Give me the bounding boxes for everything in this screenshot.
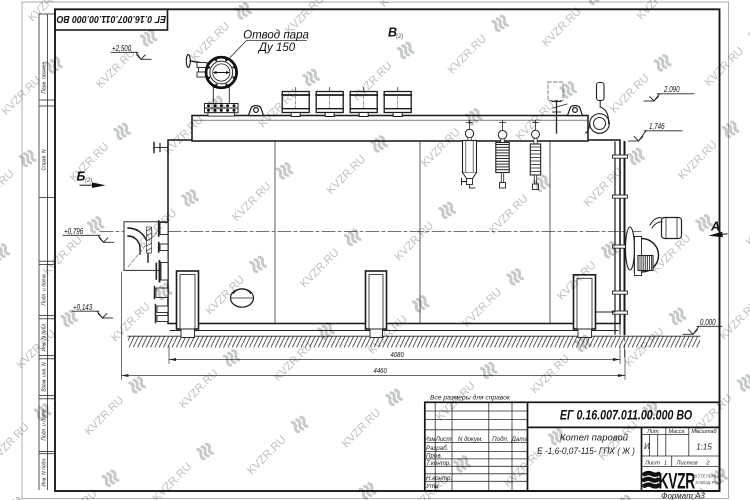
- svg-text:KVZR.RU: KVZR.RU: [177, 367, 221, 411]
- svg-text:(2): (2): [85, 178, 92, 184]
- svg-text:KVZR.RU: KVZR.RU: [15, 328, 59, 372]
- svg-text:Справ. N: Справ. N: [41, 149, 47, 170]
- svg-text:Пров.: Пров.: [426, 453, 442, 460]
- svg-text:KVZR.RU: KVZR.RU: [94, 47, 138, 91]
- svg-text:2,090: 2,090: [663, 87, 680, 95]
- svg-text:KVZR.RU: KVZR.RU: [502, 446, 546, 490]
- svg-text:4460: 4460: [374, 367, 388, 375]
- svg-text:Т.контр.: Т.контр.: [426, 460, 451, 467]
- svg-text:2: 2: [705, 460, 710, 466]
- svg-text:+0,796: +0,796: [64, 228, 83, 236]
- svg-text:Разраб.: Разраб.: [426, 445, 448, 452]
- svg-text:KVZR.RU: KVZR.RU: [540, 6, 584, 50]
- svg-text:KVZR.RU: KVZR.RU: [378, 0, 422, 10]
- svg-text:Лист: Лист: [644, 460, 660, 466]
- svg-text:Подп. и дата: Подп. и дата: [41, 274, 47, 306]
- svg-text:Масса: Масса: [669, 429, 685, 435]
- svg-text:ЕГ 0.16.007.011.00.000 ВО: ЕГ 0.16.007.011.00.000 ВО: [560, 407, 693, 423]
- svg-text:Лит.: Лит.: [646, 429, 660, 435]
- svg-text:KVZR.RU: KVZR.RU: [635, 0, 679, 22]
- svg-text:KVZR.RU: KVZR.RU: [446, 33, 490, 77]
- svg-text:Дата: Дата: [511, 436, 529, 443]
- svg-text:KVZR.RU: KVZR.RU: [0, 168, 17, 212]
- svg-text:И: И: [644, 442, 650, 451]
- svg-text:KVZR.RU: KVZR.RU: [0, 421, 32, 465]
- svg-text:4080: 4080: [391, 351, 405, 359]
- svg-text:Перв. примен.: Перв. примен.: [41, 60, 47, 93]
- svg-text:KVZR.RU: KVZR.RU: [703, 45, 747, 89]
- svg-text:1,746: 1,746: [649, 124, 665, 132]
- svg-text:ЕГ 0.16.007.011.00.000 ВО: ЕГ 0.16.007.011.00.000 ВО: [56, 13, 166, 25]
- svg-text:1: 1: [664, 460, 667, 466]
- svg-text:Инв. N подл.: Инв. N подл.: [41, 457, 47, 486]
- svg-text:Подп.: Подп.: [492, 436, 508, 443]
- svg-text:(2): (2): [396, 34, 403, 40]
- svg-text:N докум.: N докум.: [458, 436, 483, 443]
- svg-text:KVZR.RU: KVZR.RU: [340, 407, 384, 451]
- svg-text:Взам. инв. N: Взам. инв. N: [41, 362, 47, 392]
- svg-text:KVZR.RU: KVZR.RU: [676, 139, 720, 183]
- svg-text:1:15: 1:15: [696, 443, 712, 452]
- svg-text:KVZR.RU: KVZR.RU: [151, 461, 195, 500]
- svg-text:KVZR: KVZR: [659, 468, 696, 493]
- svg-text:KVZR.RU: KVZR.RU: [608, 72, 652, 116]
- svg-text:KVZR.RU: KVZR.RU: [744, 205, 750, 249]
- svg-text:А: А: [710, 220, 720, 234]
- svg-text:Ду 150: Ду 150: [257, 42, 296, 54]
- svg-text:KVZR.RU: KVZR.RU: [245, 434, 289, 478]
- svg-text:Лист: Лист: [435, 436, 452, 443]
- svg-text:KVZR.RU: KVZR.RU: [83, 394, 127, 438]
- svg-text:Отвод пара: Отвод пара: [243, 30, 309, 42]
- svg-text:Листов: Листов: [676, 460, 698, 466]
- svg-text:KVZR.RU: KVZR.RU: [718, 299, 750, 343]
